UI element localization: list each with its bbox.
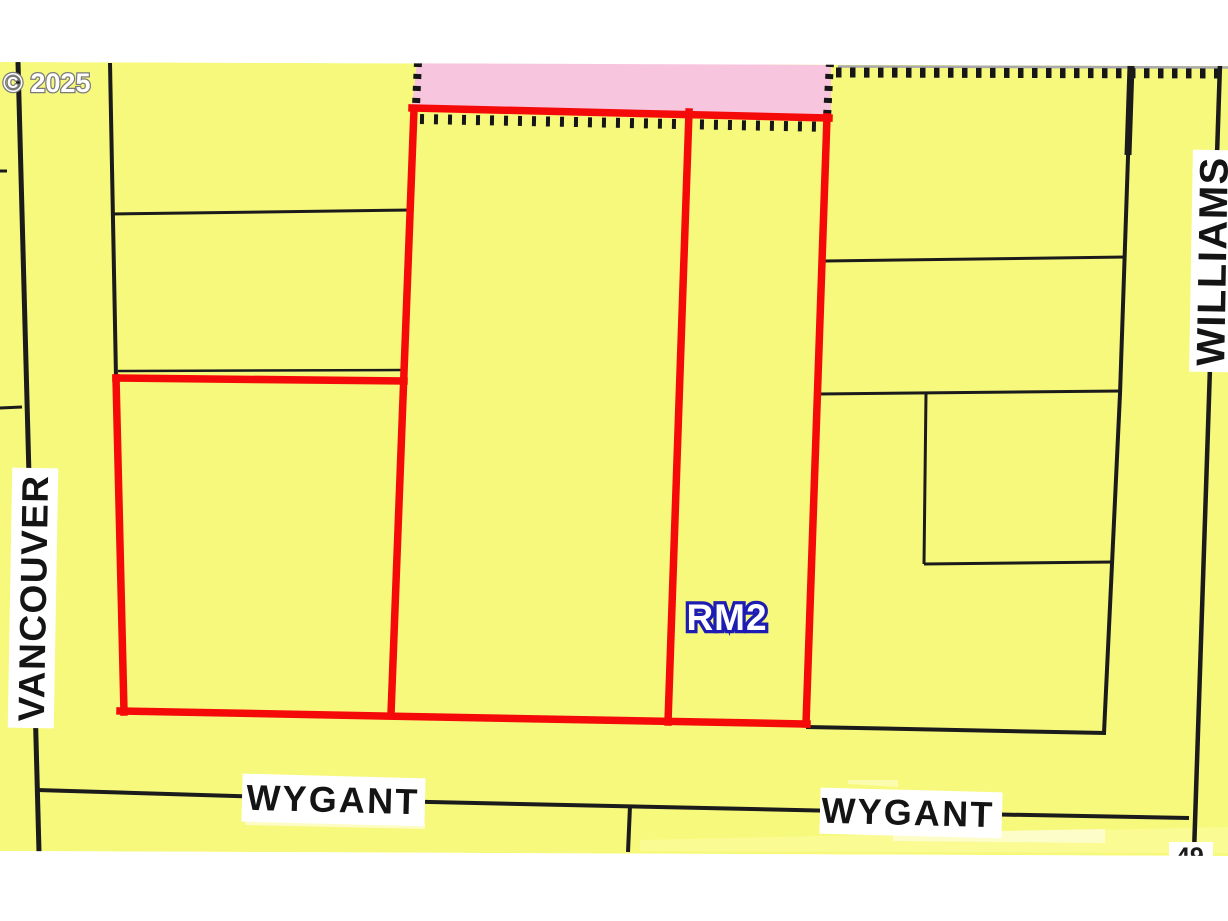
svg-text:VANCOUVER: VANCOUVER <box>11 474 56 722</box>
svg-text:RM2: RM2 <box>686 597 767 638</box>
svg-text:WYGANT: WYGANT <box>821 790 995 836</box>
svg-text:WILLIAMS: WILLIAMS <box>1189 156 1228 366</box>
svg-text:WYGANT: WYGANT <box>246 777 420 823</box>
svg-text:© 2025: © 2025 <box>3 68 90 98</box>
